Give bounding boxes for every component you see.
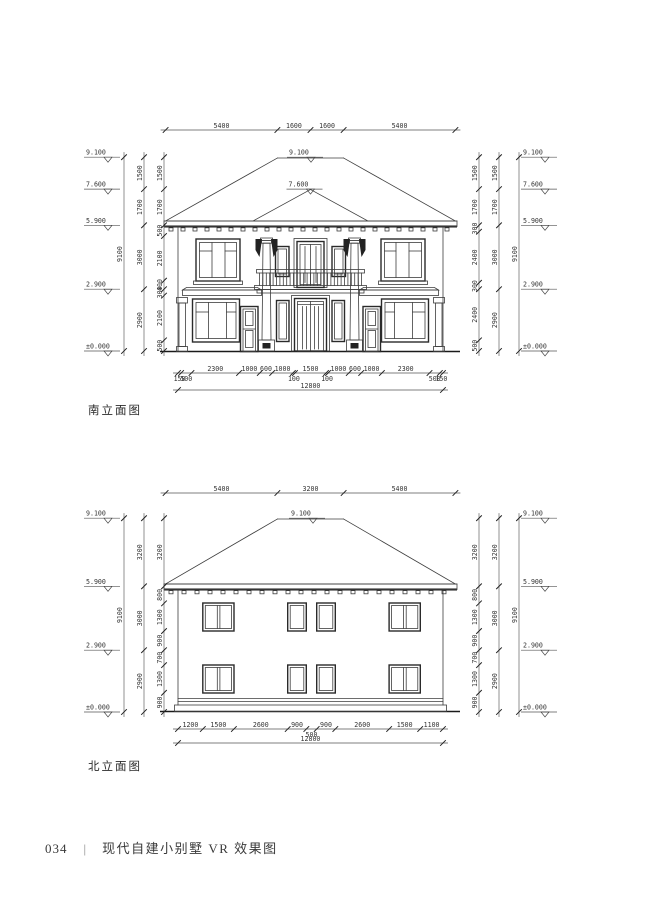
dim-label: 700 xyxy=(156,652,164,664)
dim-label: 1500 xyxy=(397,721,413,729)
dim-label: 2300 xyxy=(398,365,414,373)
dim-label: 600 xyxy=(349,365,361,373)
dim-label: 1100 xyxy=(424,721,440,729)
south-elevation-drawing xyxy=(160,158,460,352)
dim-label: 800 xyxy=(156,589,164,601)
dim-label: 7.600 xyxy=(523,181,543,189)
dim-label: 1500 xyxy=(303,365,319,373)
dim-label: 1300 xyxy=(156,671,164,687)
dim-label: 1000 xyxy=(330,365,346,373)
dim-label: 1300 xyxy=(471,609,479,625)
dim-label: 1700 xyxy=(136,199,144,215)
dim-label: ±0.000 xyxy=(86,704,110,712)
dim-label: 9100 xyxy=(511,246,519,262)
dim-label: 9.100 xyxy=(291,510,311,518)
north-elevation-drawing xyxy=(160,519,460,712)
dim-label: 2100 xyxy=(156,250,164,266)
dim-label: 12800 xyxy=(301,735,321,743)
dim-label: 700 xyxy=(471,652,479,664)
dim-label: 5400 xyxy=(392,122,408,130)
dim-label: 5.900 xyxy=(86,578,106,586)
dim-label: 2300 xyxy=(207,365,223,373)
dim-label: 5400 xyxy=(214,485,230,493)
figure-caption-south: 南立面图 xyxy=(88,402,142,418)
dim-label: 3000 xyxy=(491,249,499,265)
dim-label: 1500 xyxy=(471,165,479,181)
dim-label: ±0.000 xyxy=(523,343,547,351)
dim-label: 1500 xyxy=(491,165,499,181)
dim-label: 300 xyxy=(471,223,479,235)
dim-label: 1500 xyxy=(136,165,144,181)
dim-label: ±0.000 xyxy=(86,343,110,351)
dim-label: 3200 xyxy=(303,485,319,493)
dim-label: 100 xyxy=(288,375,300,383)
dim-label: 3200 xyxy=(491,544,499,560)
dim-label: 2900 xyxy=(491,312,499,328)
dim-label: 12800 xyxy=(301,382,321,390)
dim-label: 9100 xyxy=(511,607,519,623)
dim-label: 500 xyxy=(180,375,192,383)
dim-label: 9.100 xyxy=(289,149,309,157)
dim-label: 2100 xyxy=(156,310,164,326)
footer-separator: | xyxy=(84,841,87,857)
dim-label: 3000 xyxy=(136,249,144,265)
north-dimension-annotations: 5400320054001200150026009005009002600150… xyxy=(84,485,557,746)
dim-label: 2.900 xyxy=(86,642,106,650)
dim-label: 150 xyxy=(435,375,447,383)
dim-label: 9.100 xyxy=(523,510,543,518)
dim-label: 1700 xyxy=(491,199,499,215)
dim-label: 3000 xyxy=(491,610,499,626)
dim-label: 500 xyxy=(156,225,164,237)
dim-label: 2.900 xyxy=(523,281,543,289)
dim-label: 2600 xyxy=(354,721,370,729)
dim-label: 1000 xyxy=(275,365,291,373)
dim-label: 1600 xyxy=(319,122,335,130)
dim-label: 100 xyxy=(321,375,333,383)
dim-label: 900 xyxy=(156,635,164,647)
dim-label: 2400 xyxy=(471,307,479,323)
dim-label: 1000 xyxy=(364,365,380,373)
dim-label: 900 xyxy=(471,696,479,708)
dim-label: 3200 xyxy=(471,544,479,560)
dim-label: 9100 xyxy=(116,607,124,623)
dim-label: 9.100 xyxy=(523,149,543,157)
page-number: 034 xyxy=(45,841,68,857)
dim-label: 1300 xyxy=(156,609,164,625)
dim-label: 900 xyxy=(320,721,332,729)
dim-label: 2900 xyxy=(491,673,499,689)
dim-label: 5400 xyxy=(392,485,408,493)
dim-label: 1300 xyxy=(471,671,479,687)
book-title: 现代自建小别墅 VR 效果图 xyxy=(102,838,278,857)
dim-label: 300 xyxy=(471,280,479,292)
dim-label: 900 xyxy=(291,721,303,729)
dim-label: 9100 xyxy=(116,246,124,262)
dim-label: 9.100 xyxy=(86,149,106,157)
dim-label: 1200 xyxy=(182,721,198,729)
dim-label: 9.100 xyxy=(86,510,106,518)
dim-label: 7.600 xyxy=(289,181,309,189)
dim-label: 1500 xyxy=(210,721,226,729)
dim-label: 2900 xyxy=(136,673,144,689)
dim-label: 5.900 xyxy=(523,578,543,586)
dim-label: 1700 xyxy=(156,199,164,215)
page-footer: 034 | 现代自建小别墅 VR 效果图 xyxy=(45,838,278,857)
dim-label: 2600 xyxy=(253,721,269,729)
dim-label: 1500 xyxy=(156,165,164,181)
dim-label: 900 xyxy=(471,635,479,647)
dim-label: 300 xyxy=(156,286,164,298)
dim-label: 5.900 xyxy=(523,217,543,225)
dim-label: 7.600 xyxy=(86,181,106,189)
dim-label: 500 xyxy=(471,340,479,352)
dim-label: 5.900 xyxy=(86,217,106,225)
dim-label: 3200 xyxy=(136,544,144,560)
dim-label: 600 xyxy=(260,365,272,373)
figure-caption-north: 北立面图 xyxy=(88,758,142,774)
dim-label: 3200 xyxy=(156,544,164,560)
dim-label: 1000 xyxy=(241,365,257,373)
dim-label: ±0.000 xyxy=(523,704,547,712)
dim-label: 1700 xyxy=(471,199,479,215)
dim-label: 3000 xyxy=(136,610,144,626)
dim-label: 800 xyxy=(471,589,479,601)
dim-label: 500 xyxy=(156,340,164,352)
dim-label: 2900 xyxy=(136,312,144,328)
dim-label: 2.900 xyxy=(86,281,106,289)
dim-label: 2.900 xyxy=(523,642,543,650)
dim-label: 1600 xyxy=(286,122,302,130)
dim-label: 2400 xyxy=(471,249,479,265)
dim-label: 5400 xyxy=(214,122,230,130)
dim-label: 900 xyxy=(156,696,164,708)
